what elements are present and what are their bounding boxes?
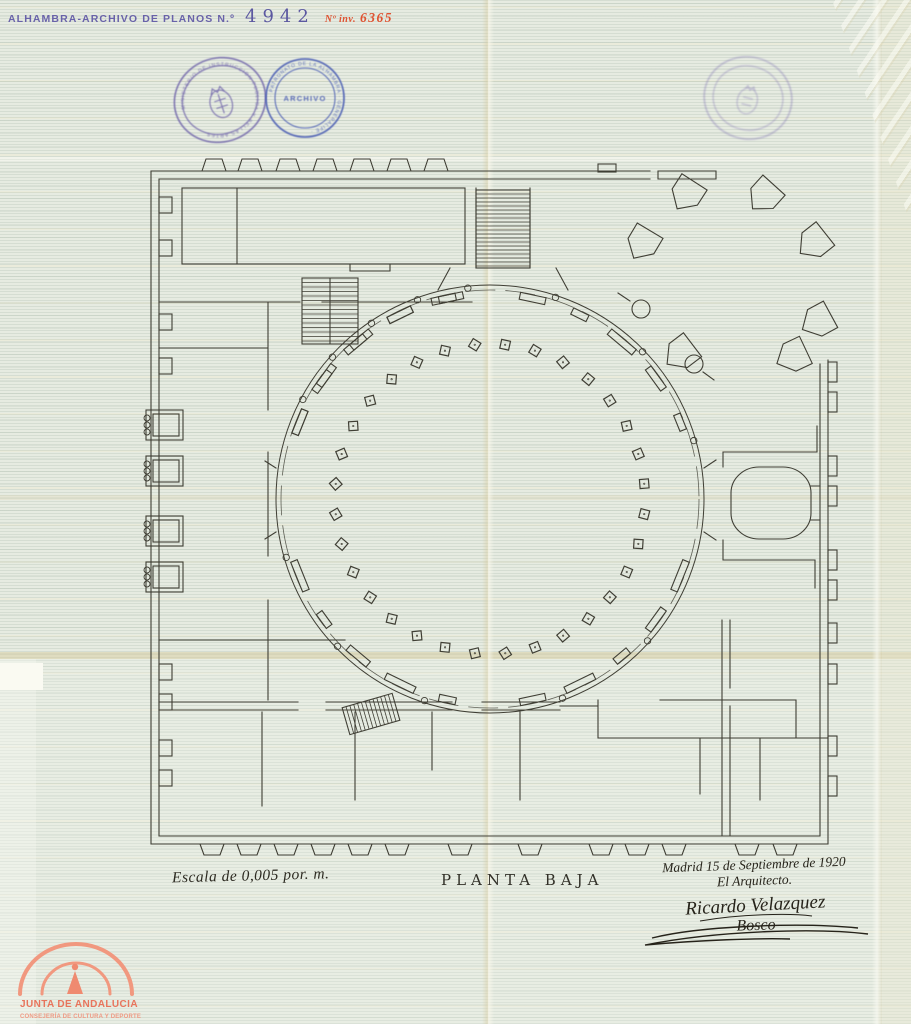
ministry-oval-stamp: MINISTERIO DE INSTRUCCION PUBLICA Y BELL… <box>163 46 276 154</box>
southeast-room-walls <box>560 700 828 800</box>
east-vestibule-walls <box>723 426 820 588</box>
west-wing-walls <box>159 302 345 700</box>
junta-logo-line2: CONSEJERÍA DE CULTURA Y DEPORTE <box>20 1012 141 1020</box>
royal-crest-icon <box>206 84 237 120</box>
archive-stamp-center-text: ARCHIVO <box>284 94 327 103</box>
signature-block: Madrid 15 de Septiembre de 1920 El Arqui… <box>632 853 879 939</box>
inventory-number: Nº inv. 6365 <box>325 9 393 27</box>
junta-logo-line1: JUNTA DE ANDALUCIA <box>20 999 138 1010</box>
north-facade-fragment <box>658 171 716 179</box>
header: ALHAMBRA-ARCHIVO DE PLANOS N.º 4942 Nº i… <box>8 6 393 27</box>
archive-round-stamp: ARCHIVO · PATRONATO DE LA ALHAMBRA · GEN… <box>266 59 344 137</box>
junta-figure-icon <box>67 964 83 994</box>
plan-number: 4942 <box>245 6 315 27</box>
scanned-plan-document: MINISTERIO DE INSTRUCCION PUBLICA Y BELL… <box>0 0 911 1024</box>
east-octagon-room <box>731 467 811 539</box>
archive-label: ALHAMBRA-ARCHIVO DE PLANOS N.º <box>8 13 235 25</box>
plan-title: PLANTA BAJA <box>441 871 604 889</box>
south-wing-partitions <box>262 712 520 806</box>
inventory-label: Nº inv. <box>325 14 356 25</box>
courtyard-junctions <box>265 460 716 540</box>
faint-oval-stamp <box>695 48 800 149</box>
east-wing-wall <box>722 620 730 836</box>
northwest-hall <box>182 188 465 264</box>
round-pier <box>632 300 650 318</box>
junta-andalucia-logo: JUNTA DE ANDALUCIA CONSEJERÍA DE CULTURA… <box>12 936 152 1024</box>
inventory-value: 6365 <box>360 10 393 25</box>
hall-partition <box>237 188 390 271</box>
faint-crest-icon <box>734 84 760 116</box>
north-stair-enclosure <box>438 188 568 290</box>
outer-facade <box>151 171 828 844</box>
